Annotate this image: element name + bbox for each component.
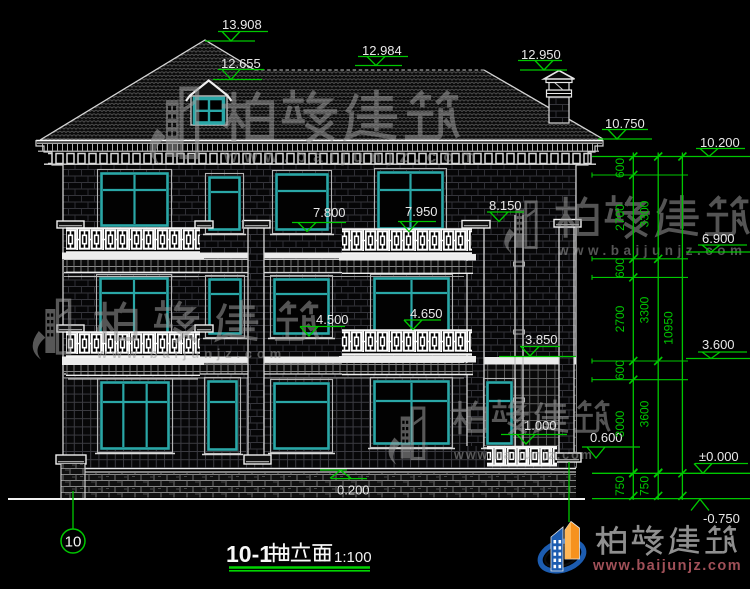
svg-text:1:100: 1:100 (334, 549, 372, 566)
svg-text:6.900: 6.900 (702, 231, 735, 246)
svg-text:7.800: 7.800 (313, 205, 346, 220)
svg-text:10950: 10950 (662, 311, 676, 345)
svg-text:www.baijunjz.com: www.baijunjz.com (592, 558, 742, 574)
svg-text:8.150: 8.150 (489, 198, 522, 213)
svg-text:2700: 2700 (613, 305, 627, 332)
svg-text:600: 600 (613, 158, 627, 178)
svg-text:3300: 3300 (638, 296, 652, 323)
svg-text:3000: 3000 (613, 410, 627, 437)
svg-text:750: 750 (613, 476, 627, 496)
svg-text:12.984: 12.984 (362, 43, 402, 58)
svg-text:750: 750 (638, 476, 652, 496)
svg-text:3.850: 3.850 (525, 332, 558, 347)
svg-text:13.908: 13.908 (222, 17, 262, 32)
svg-text:www.baijunjz.com: www.baijunjz.com (96, 346, 286, 361)
svg-text:10: 10 (65, 534, 82, 551)
svg-text:600: 600 (613, 360, 627, 380)
svg-text:3.600: 3.600 (702, 337, 735, 352)
svg-text:12.655: 12.655 (221, 56, 261, 71)
svg-text:4.650: 4.650 (410, 306, 443, 321)
svg-text:-0.750: -0.750 (703, 511, 740, 526)
svg-text:10-1: 10-1 (226, 541, 272, 567)
svg-text:10.750: 10.750 (605, 116, 645, 131)
svg-text:600: 600 (613, 258, 627, 278)
svg-text:4.500: 4.500 (316, 312, 349, 327)
svg-text:www.baijunjz.com: www.baijunjz.com (223, 147, 483, 166)
svg-text:1.000: 1.000 (524, 418, 557, 433)
svg-text:12.950: 12.950 (521, 47, 561, 62)
svg-text:10.200: 10.200 (700, 135, 740, 150)
svg-text:3300: 3300 (638, 200, 652, 227)
svg-text:3600: 3600 (638, 400, 652, 427)
svg-text:±0.000: ±0.000 (699, 449, 739, 464)
svg-text:www.baijunjz.com: www.baijunjz.com (453, 448, 594, 462)
svg-text:2700: 2700 (613, 204, 627, 231)
svg-text:7.950: 7.950 (405, 204, 438, 219)
svg-text:0.200: 0.200 (337, 483, 370, 498)
